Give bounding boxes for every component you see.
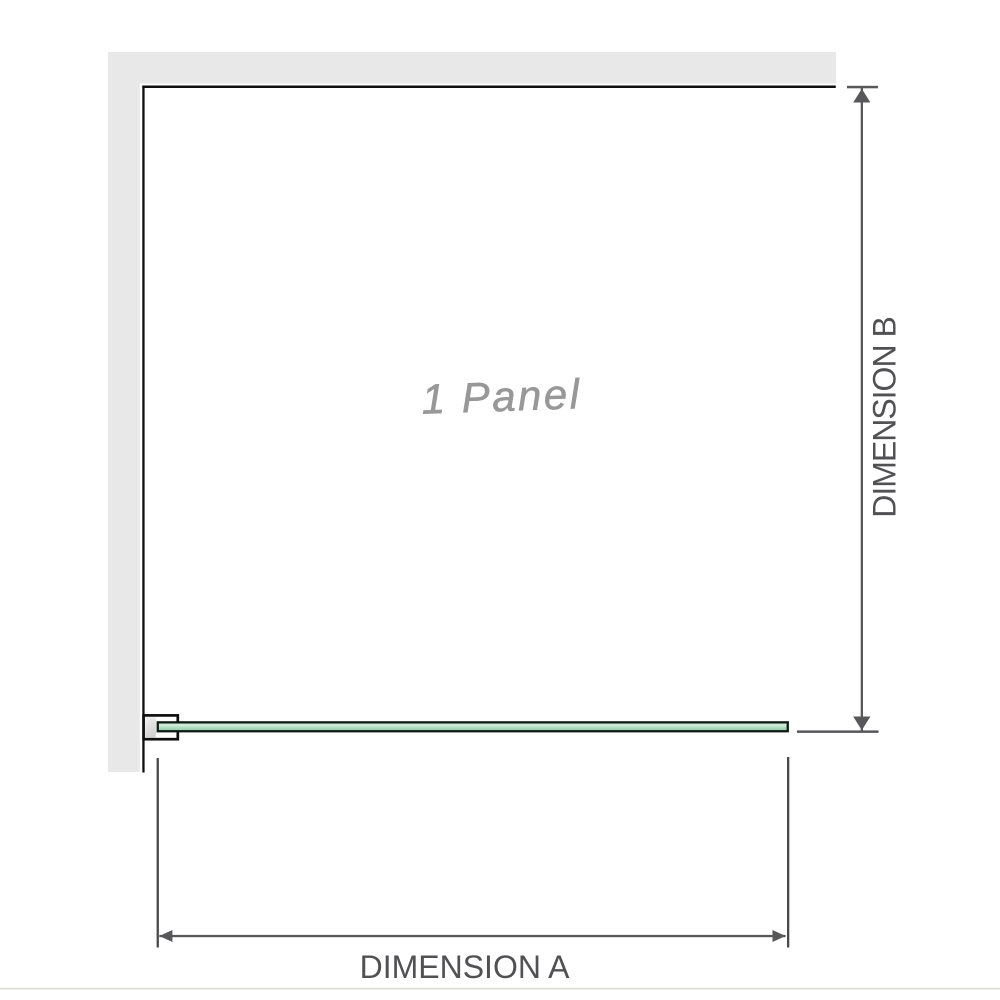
svg-text:DIMENSION B: DIMENSION B	[867, 317, 903, 518]
svg-text:DIMENSION A: DIMENSION A	[360, 949, 570, 985]
svg-text:1 Panel: 1 Panel	[421, 370, 582, 423]
